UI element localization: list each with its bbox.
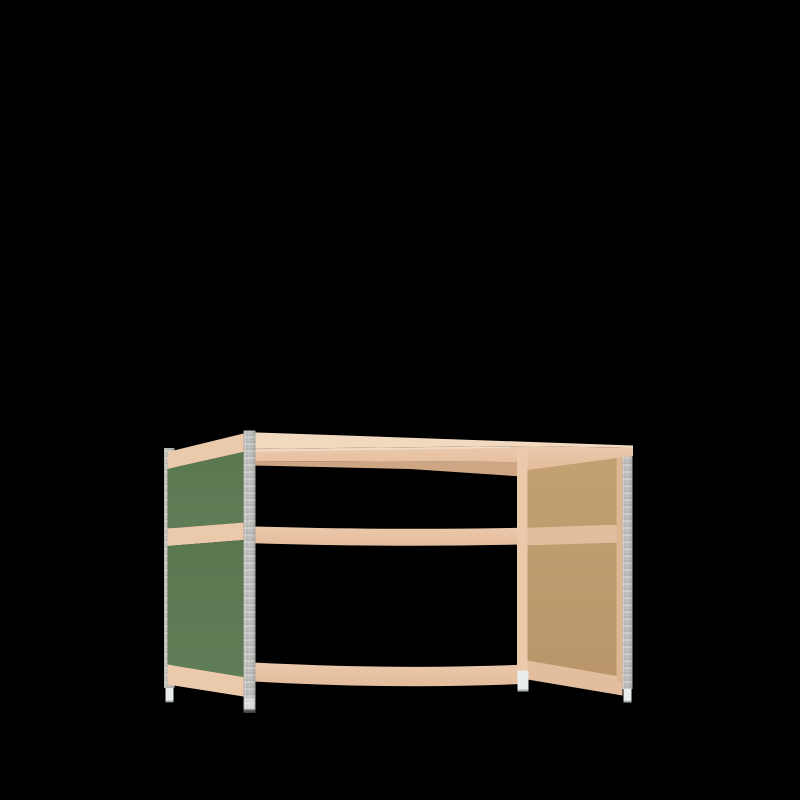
rear-right-foot	[624, 689, 632, 703]
front-right-stile	[517, 447, 528, 671]
front-right-corner	[517, 447, 529, 692]
front-right-foot	[518, 671, 529, 692]
render-stage	[0, 0, 800, 800]
middle-front-beam	[254, 527, 522, 546]
right-side-panel	[522, 457, 623, 696]
rear-right-post-shading	[622, 446, 633, 689]
rear-left-foot-shadow	[166, 701, 174, 703]
rear-right-post	[622, 446, 633, 703]
right-middle-rail	[522, 525, 623, 546]
right-mdf-panel	[522, 457, 623, 680]
right-rear-edge-strip	[617, 457, 623, 683]
front-right-foot-shadow	[518, 690, 529, 692]
front-left-foot	[245, 698, 255, 709]
front-left-post-base-edge	[244, 712, 256, 714]
left-side-panel	[168, 434, 244, 697]
left-green-panel-lower	[168, 540, 244, 677]
rear-left-foot	[166, 688, 174, 702]
shelving-unit-render	[0, 0, 800, 800]
front-left-post-base	[244, 710, 256, 712]
front-left-post-shading	[244, 431, 256, 713]
front-left-post	[244, 431, 256, 714]
rear-right-foot-shadow	[624, 701, 632, 703]
